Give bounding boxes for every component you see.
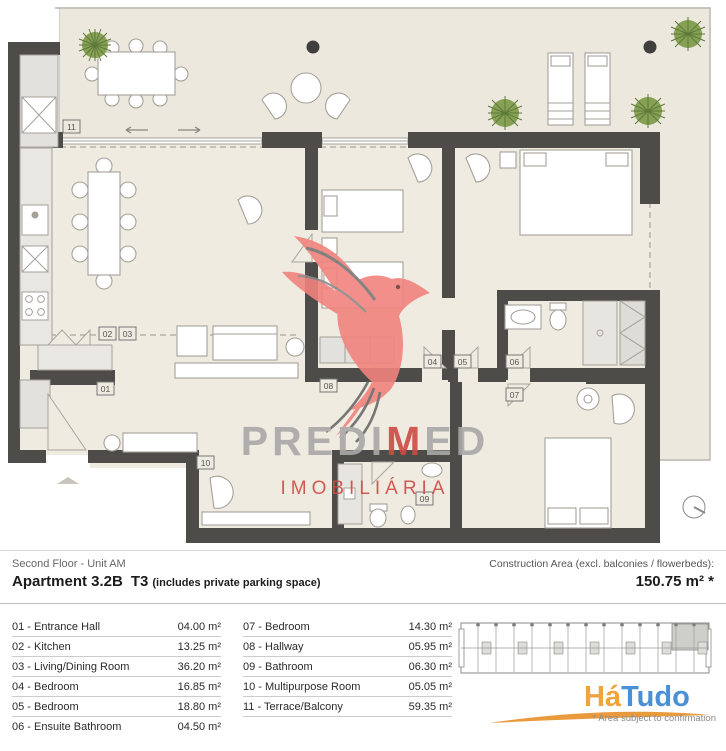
- watermark-brand: PREDIMED: [241, 418, 489, 464]
- room-list: 01 - Entrance Hall04.00 m²02 - Kitchen13…: [12, 617, 452, 736]
- label-08: 08: [320, 379, 337, 392]
- room-area: 06.30 m²: [409, 661, 452, 673]
- room-area: 04.50 m²: [178, 721, 221, 733]
- room-row: 11 - Terrace/Balcony59.35 m²: [243, 697, 452, 717]
- north-arrow: [683, 496, 705, 518]
- room-label: 06 - Ensuite Bathroom: [12, 721, 121, 733]
- room-area: 13.25 m²: [178, 641, 221, 653]
- room-label: 04 - Bedroom: [12, 681, 79, 693]
- apartment-name: Apartment 3.2B: [12, 573, 123, 590]
- room-area: 04.00 m²: [178, 621, 221, 633]
- parking-note: (includes private parking space): [152, 577, 320, 589]
- logo-part-ha: Há: [584, 681, 621, 713]
- room-area: 36.20 m²: [178, 661, 221, 673]
- svg-text:02: 02: [103, 329, 113, 339]
- kitchen-fixtures: [22, 205, 48, 320]
- room-label: 03 - Living/Dining Room: [12, 661, 129, 673]
- label-11: 11: [63, 120, 80, 133]
- room-label: 08 - Hallway: [243, 641, 304, 653]
- room-area: 16.85 m²: [178, 681, 221, 693]
- room-label: 01 - Entrance Hall: [12, 621, 100, 633]
- room-row: 05 - Bedroom18.80 m²: [12, 697, 221, 717]
- svg-text:06: 06: [510, 357, 520, 367]
- apartment-type: T3: [131, 573, 149, 590]
- label-06: 06: [506, 355, 523, 368]
- label-01: 01: [97, 382, 114, 395]
- room-area: 14.30 m²: [409, 621, 452, 633]
- svg-text:01: 01: [101, 384, 111, 394]
- area-confirmation-note: * Area subject to confirmation: [592, 713, 716, 724]
- info-header: Second Floor - Unit AM Apartment 3.2BT3(…: [0, 551, 726, 603]
- svg-text:11: 11: [67, 122, 76, 132]
- room-row: 03 - Living/Dining Room36.20 m²: [12, 657, 221, 677]
- room-row: 09 - Bathroom06.30 m²: [243, 657, 452, 677]
- info-panel: Second Floor - Unit AM Apartment 3.2BT3(…: [0, 550, 726, 751]
- room-row: 01 - Entrance Hall04.00 m²: [12, 617, 221, 637]
- label-04: 04: [424, 355, 441, 368]
- room-list-left-column: 01 - Entrance Hall04.00 m²02 - Kitchen13…: [12, 617, 221, 736]
- svg-text:07: 07: [510, 390, 520, 400]
- room-row: 02 - Kitchen13.25 m²: [12, 637, 221, 657]
- room-area: 59.35 m²: [409, 701, 452, 713]
- room-label: 05 - Bedroom: [12, 701, 79, 713]
- floor-plan: 11 02 03 01 08 10 04 05 06 07 09 PREDIME…: [0, 0, 726, 550]
- room-label: 10 - Multipurpose Room: [243, 681, 360, 693]
- label-05: 05: [454, 355, 471, 368]
- construction-area-value: 150.75 m² *: [636, 573, 714, 590]
- room-row: 10 - Multipurpose Room05.05 m²: [243, 677, 452, 697]
- apartment-title: Apartment 3.2BT3(includes private parkin…: [12, 573, 321, 590]
- label-02: 02: [99, 327, 116, 340]
- svg-text:05: 05: [458, 357, 468, 367]
- windows: [60, 138, 408, 144]
- room-area: 05.05 m²: [409, 681, 452, 693]
- svg-text:08: 08: [324, 381, 334, 391]
- logo-text: HáTudo: [584, 681, 690, 714]
- room-list-right-column: 07 - Bedroom14.30 m²08 - Hallway05.95 m²…: [243, 617, 452, 736]
- label-07: 07: [506, 388, 523, 401]
- room-row: 06 - Ensuite Bathroom04.50 m²: [12, 717, 221, 736]
- floorplan-sheet: { "meta": { "floor_label": "Second Floor…: [0, 0, 726, 750]
- room-row: 04 - Bedroom16.85 m²: [12, 677, 221, 697]
- room-area: 18.80 m²: [178, 701, 221, 713]
- label-03: 03: [119, 327, 136, 340]
- building-keyplan: [458, 615, 712, 681]
- svg-text:10: 10: [201, 458, 211, 468]
- construction-area-label: Construction Area (excl. balconies / flo…: [489, 558, 714, 570]
- room-label: 07 - Bedroom: [243, 621, 310, 633]
- agency-logo: HáTudo * Area subject to confirmation: [578, 681, 718, 727]
- watermark-subtitle: IMOBILIÁRIA: [280, 478, 449, 499]
- room-row: 07 - Bedroom14.30 m²: [243, 617, 452, 637]
- logo-part-tudo: Tudo: [621, 681, 690, 713]
- svg-text:03: 03: [123, 329, 133, 339]
- label-10: 10: [197, 456, 214, 469]
- room-label: 09 - Bathroom: [243, 661, 313, 673]
- floor-label: Second Floor - Unit AM: [12, 558, 126, 570]
- floor-plan-drawing: 11 02 03 01 08 10 04 05 06 07 09 PREDIME…: [0, 0, 726, 550]
- room-area: 05.95 m²: [409, 641, 452, 653]
- room-row: 08 - Hallway05.95 m²: [243, 637, 452, 657]
- room-label: 02 - Kitchen: [12, 641, 71, 653]
- svg-text:04: 04: [428, 357, 438, 367]
- room-label: 11 - Terrace/Balcony: [243, 701, 343, 713]
- divider: [0, 603, 726, 604]
